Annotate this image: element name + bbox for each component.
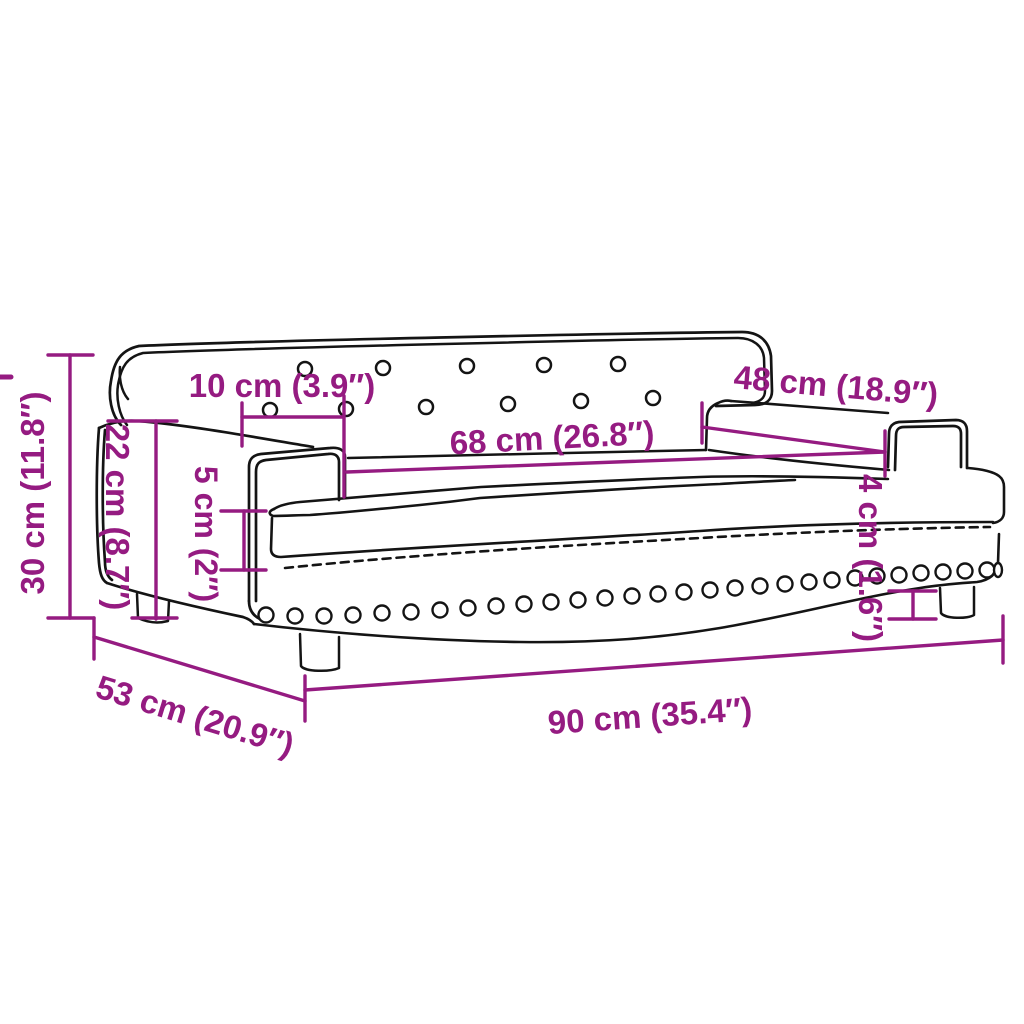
- svg-text:22 cm (8.7″): 22 cm (8.7″): [99, 424, 136, 610]
- svg-text:5 cm (2″): 5 cm (2″): [188, 466, 224, 602]
- svg-text:10 cm (3.9″): 10 cm (3.9″): [189, 367, 375, 404]
- svg-text:4 cm (1.6″): 4 cm (1.6″): [852, 474, 889, 642]
- svg-text:30 cm (11.8″): 30 cm (11.8″): [14, 392, 51, 595]
